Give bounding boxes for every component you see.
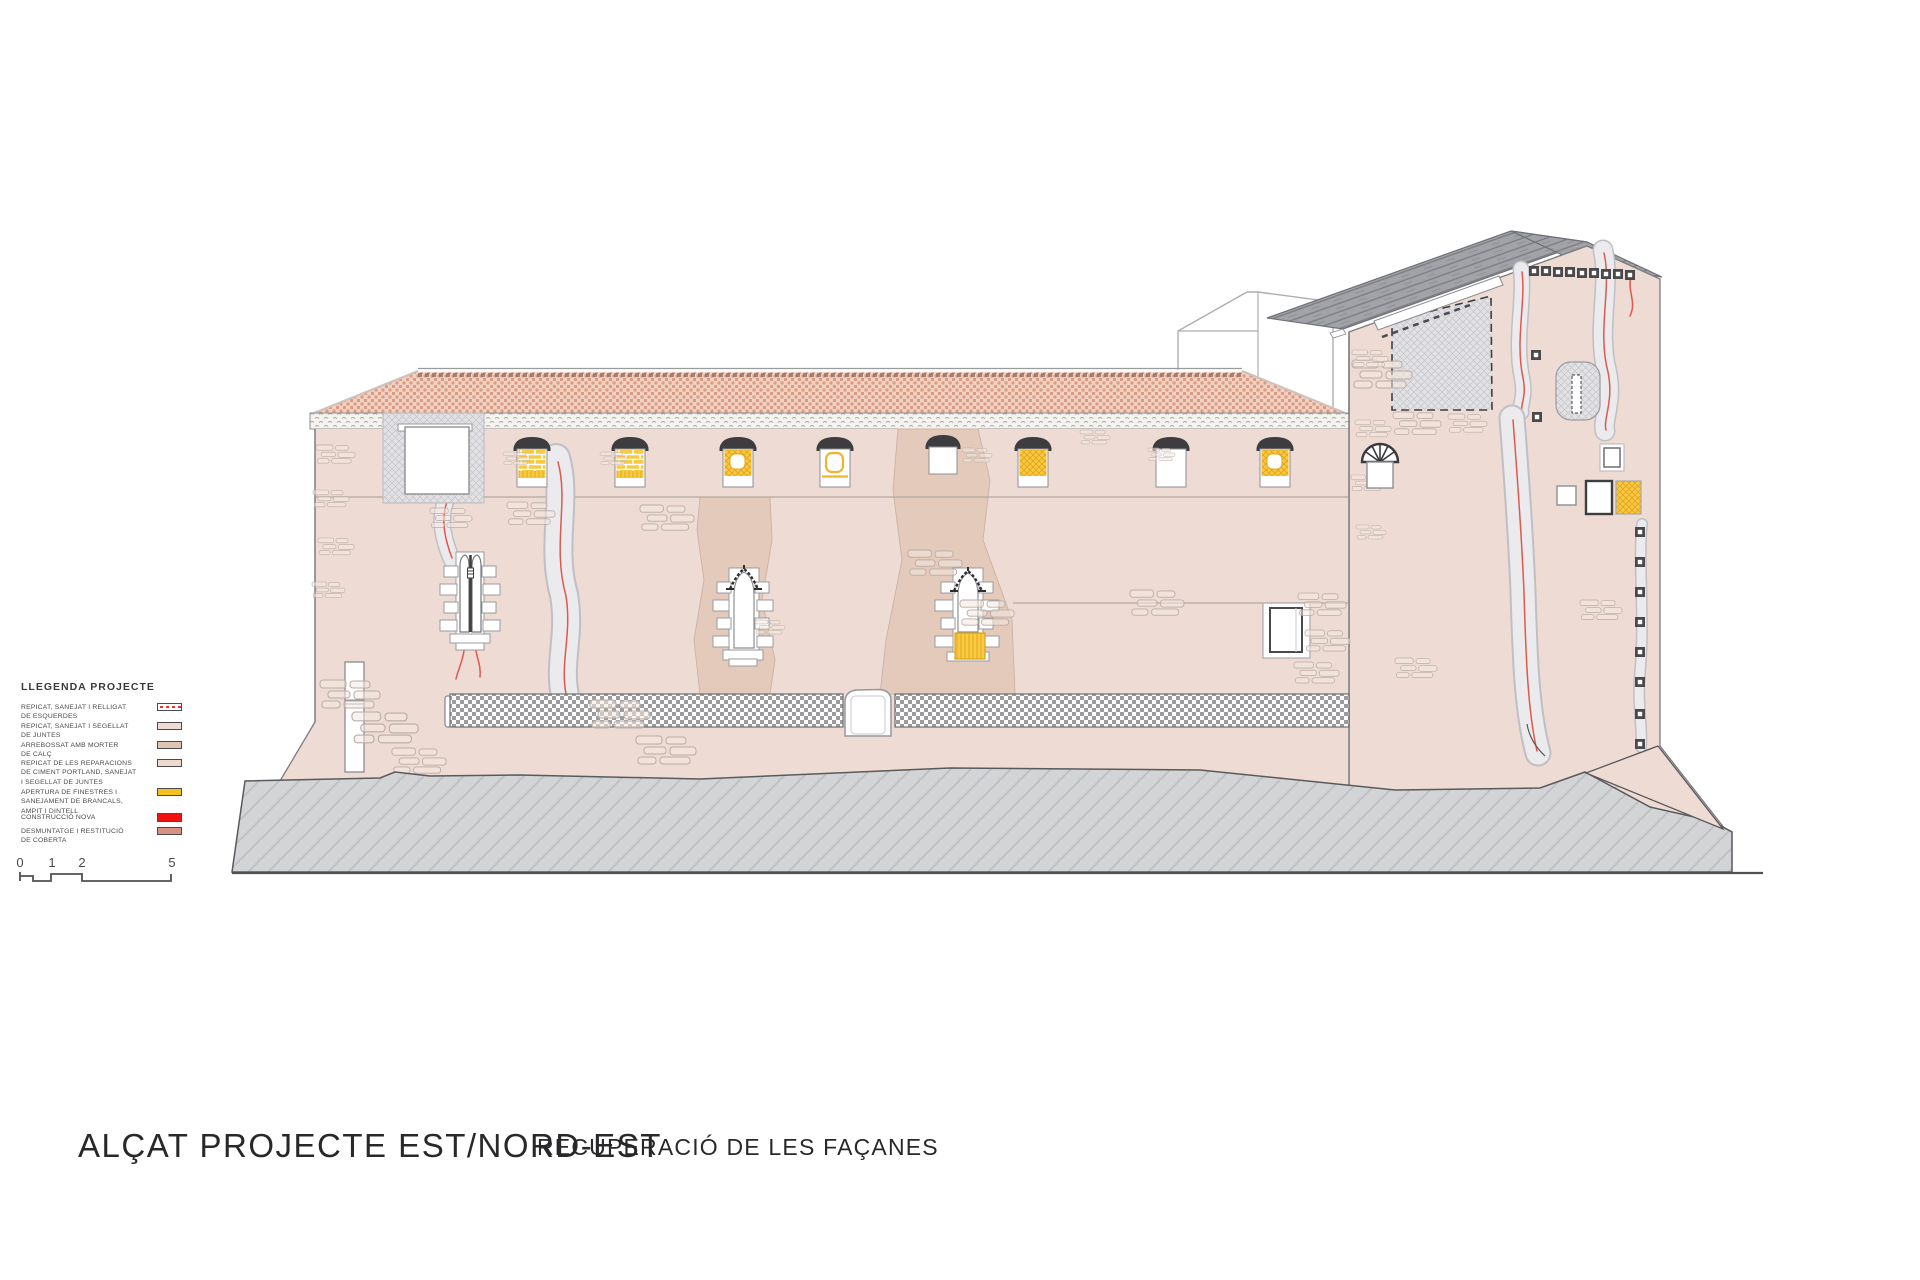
legend-swatch-roof-restitution (157, 827, 182, 835)
slit-window-patch (1556, 362, 1600, 420)
tower-window-small (1600, 444, 1624, 471)
legend-swatch-crack-repair (157, 703, 182, 711)
scale-label-1: 1 (48, 855, 55, 870)
walkway-band (445, 694, 1349, 727)
large-window (383, 413, 484, 503)
legend-swatch-new-construction (157, 813, 182, 822)
legend-swatch-window-opening (157, 788, 182, 796)
fan-arch-window (1362, 444, 1398, 488)
legend-item: REPICAT, SANEJAT I SEGELLAT DE JUNTES (21, 722, 221, 741)
tower-window-new-opening (1616, 481, 1641, 514)
tower (1349, 246, 1725, 840)
legend-item: REPICAT DE LES REPARACIONS DE CIMENT POR… (21, 759, 221, 787)
legend-item: DESMUNTATGE I RESTITUCIÓ DE COBERTA (21, 827, 221, 846)
drawing-sheet: LLEGENDA PROJECTE REPICAT, SANEJAT I REL… (0, 0, 1920, 1280)
facade-window-yellow-opening (720, 437, 757, 487)
legend-swatch-joint-sealing (157, 722, 182, 730)
legend-swatch-lime-mortar (157, 741, 182, 749)
legend-item-label: CONSTRUCCIÓ NOVA (21, 813, 153, 822)
legend-item: APERTURA DE FINESTRES I SANEJAMENT DE BR… (21, 788, 221, 816)
door-niche (845, 690, 891, 737)
legend-swatch-portland-repair (157, 759, 182, 767)
scale-label-5: 5 (168, 855, 175, 870)
legend-item: CONSTRUCCIÓ NOVA (21, 813, 221, 822)
drawing-subtitle: RECUPERACIÓ DE LES FAÇANES (537, 1134, 939, 1161)
scale-bar (20, 872, 171, 881)
legend-item-label: REPICAT, SANEJAT I SEGELLAT DE JUNTES (21, 722, 153, 741)
facade-window-plain (1153, 437, 1190, 487)
legend-item-label: DESMUNTATGE I RESTITUCIÓ DE COBERTA (21, 827, 153, 846)
facade-window-yellow-frame (817, 437, 854, 487)
legend-item-label: ARREBOSSAT AMB MORTER DE CALÇ (21, 741, 153, 760)
legend-item: ARREBOSSAT AMB MORTER DE CALÇ (21, 741, 221, 760)
legend-item-label: REPICAT, SANEJAT I RELLIGAT DE ESQUERDES (21, 703, 153, 722)
legend-item-label: APERTURA DE FINESTRES I SANEJAMENT DE BR… (21, 788, 153, 816)
facade-window-yellow-opening (1257, 437, 1294, 487)
facade-window-yellow-hatch (1015, 437, 1052, 487)
legend-item: REPICAT, SANEJAT I RELLIGAT DE ESQUERDES (21, 703, 221, 722)
scale-label-2: 2 (78, 855, 85, 870)
legend-title: LLEGENDA PROJECTE (21, 681, 155, 693)
legend-item-label: REPICAT DE LES REPARACIONS DE CIMENT POR… (21, 759, 153, 787)
elevation-drawing (0, 0, 1920, 1280)
facade-window-plain (926, 435, 961, 474)
scale-label-0: 0 (16, 855, 23, 870)
